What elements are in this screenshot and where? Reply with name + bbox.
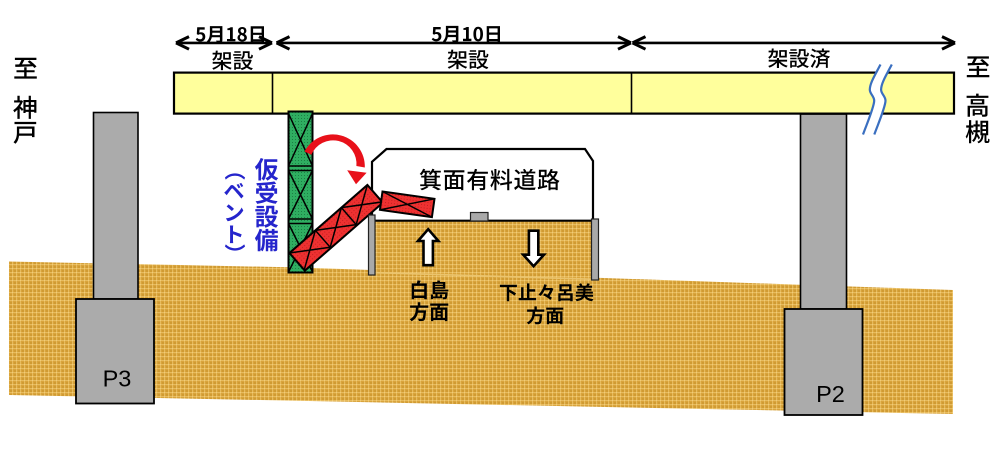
svg-text:P3: P3 — [103, 366, 132, 392]
svg-text:P2: P2 — [816, 381, 845, 407]
